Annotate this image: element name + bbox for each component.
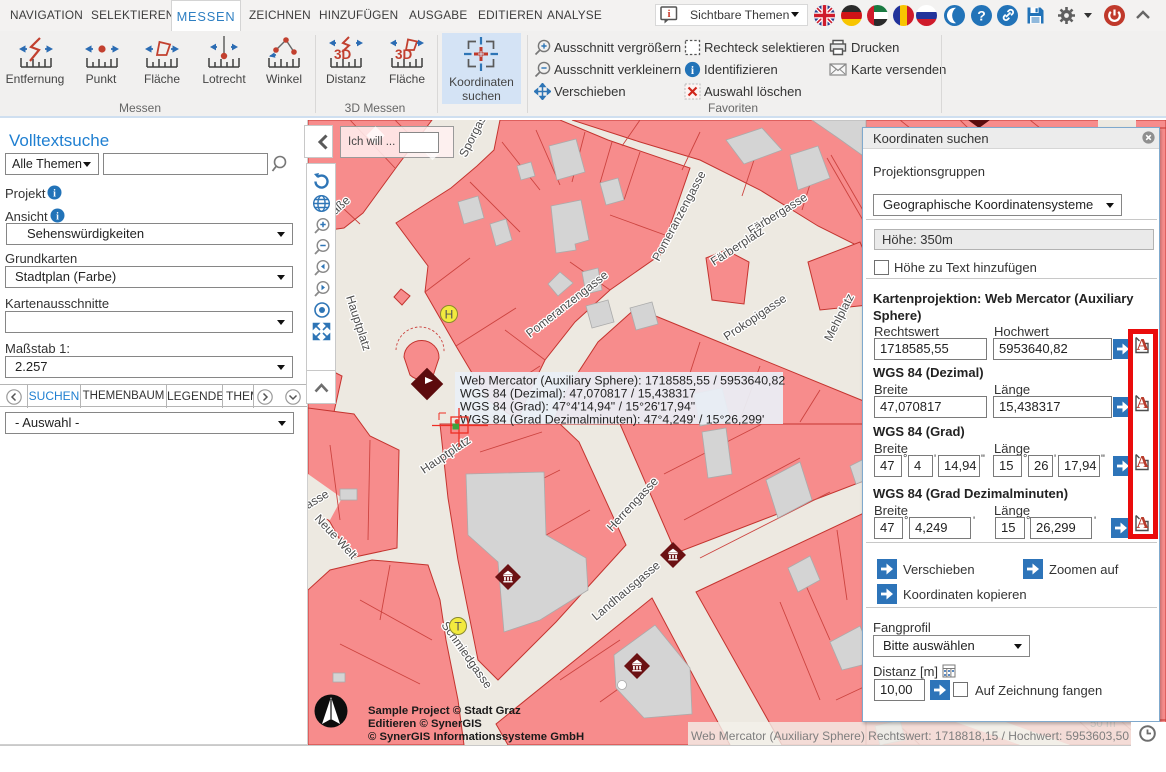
svg-text:WGS 84 (Grad): 47°4'14,94" / 1: WGS 84 (Grad): 47°4'14,94" / 15°26'17,94… <box>460 400 695 414</box>
svg-text:i: i <box>53 189 56 200</box>
svg-text:© SynerGIS Informationssysteme: © SynerGIS Informationssysteme GmbH <box>368 731 584 743</box>
svg-text:WGS 84 (Grad Dezimalminuten):: WGS 84 (Grad Dezimalminuten): 47°4,249' … <box>460 413 764 427</box>
svg-text:3D: 3D <box>395 47 413 62</box>
svg-text:Sample Project © Stadt Graz: Sample Project © Stadt Graz <box>368 705 521 717</box>
svg-text:Web Mercator (Auxiliary Sphere: Web Mercator (Auxiliary Sphere): 1718585… <box>460 374 785 388</box>
svg-text:Web Mercator (Auxiliary Sphere: Web Mercator (Auxiliary Sphere) Rechtswe… <box>691 729 1129 743</box>
svg-text:T: T <box>454 620 462 634</box>
svg-text:WGS 84 (Dezimal): 47,070817 /: WGS 84 (Dezimal): 47,070817 / 15,438317 <box>460 387 696 401</box>
svg-text:?: ? <box>977 8 986 24</box>
svg-text:3D: 3D <box>334 47 352 62</box>
svg-text:i: i <box>667 8 670 20</box>
svg-text:Editieren © SynerGIS: Editieren © SynerGIS <box>368 718 482 730</box>
svg-text:H: H <box>445 308 454 322</box>
svg-text:i: i <box>56 212 59 223</box>
